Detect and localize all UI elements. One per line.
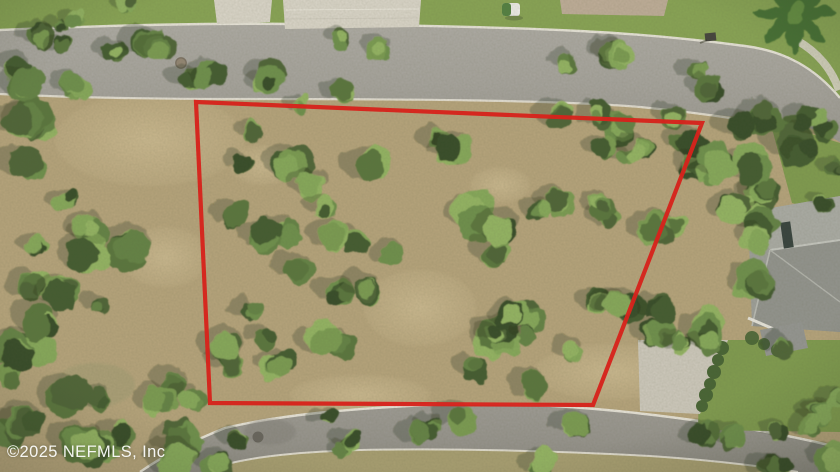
watermark: ©2025 NEFMLS, Inc (7, 443, 165, 462)
vignette (0, 0, 840, 472)
aerial-photo-canvas (0, 0, 840, 472)
aerial-lot-photo: ©2025 NEFMLS, Inc (0, 0, 840, 472)
